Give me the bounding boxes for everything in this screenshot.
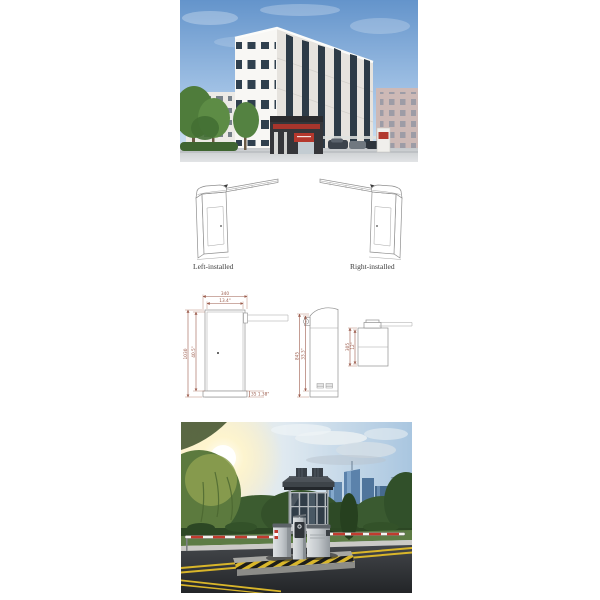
- ticket-dispenser: [293, 514, 306, 560]
- left-installed-diagram: [196, 179, 278, 260]
- top-view: [358, 320, 412, 366]
- right-boom-arm: [329, 533, 405, 536]
- installation-diagrams: Left-installed Right-installed: [180, 172, 420, 278]
- top-depth-in: 12": [350, 342, 356, 349]
- front-width-in: 13.4": [219, 298, 231, 304]
- barrier-scene-graphic: [181, 422, 412, 593]
- front-width-mm: 340: [221, 291, 229, 297]
- barrier-cabinet-left: [273, 524, 292, 558]
- front-height-mm: 1030: [183, 348, 189, 359]
- factory-photo: [180, 0, 418, 162]
- left-installed-label: Left-installed: [193, 262, 234, 271]
- top-view-dimensions: 305 12": [345, 328, 357, 366]
- gate-guard-box: [377, 128, 390, 152]
- barrier-scene-photo: [181, 422, 412, 593]
- factory-entrance: [270, 116, 323, 154]
- fence: [323, 136, 376, 139]
- right-installed-diagram: [320, 179, 402, 260]
- side-height-in: 33.3": [300, 348, 306, 360]
- front-view: [203, 310, 288, 397]
- front-base-dim: 35 1.38": [251, 392, 269, 398]
- right-installed-label: Right-installed: [350, 262, 395, 271]
- side-view: [303, 308, 338, 397]
- factory-photo-graphic: [180, 0, 418, 162]
- side-height-mm: 845: [294, 352, 300, 360]
- barrier-cabinet-right: [307, 525, 331, 558]
- product-detail-page: Left-installed Right-installed: [0, 0, 600, 600]
- side-view-dimensions: 845 33.3": [294, 314, 309, 397]
- booth-roof: [283, 482, 335, 487]
- front-height-in: 40.5": [191, 346, 197, 358]
- dimension-diagram: 340 13.4" 1030 40.5" 35 1.38": [180, 288, 420, 412]
